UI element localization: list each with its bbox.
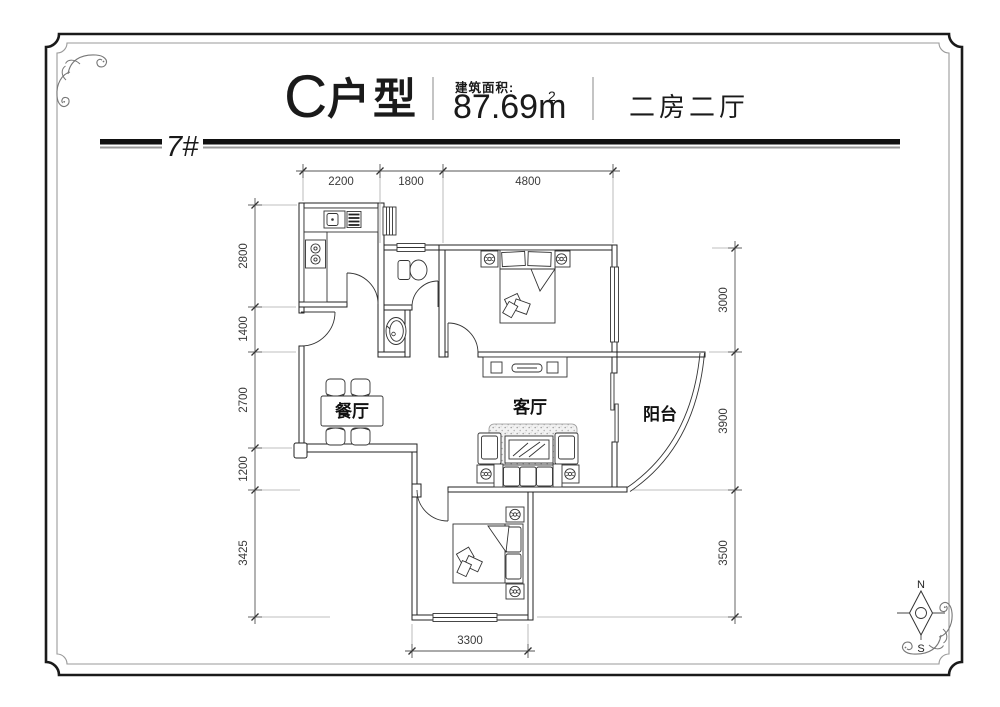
building-number-bar: 7# [100,131,900,163]
pillow [506,554,521,579]
dim-label-left-3425: 3425 [238,540,250,566]
area-unit-exponent: 2 [548,88,556,104]
bar-left-black [100,139,162,145]
dining-chair [326,379,345,396]
room-label-balcony: 阳台 [643,404,677,424]
compass-north-label: N [917,579,925,591]
coffee-table [505,436,553,463]
side-table [561,465,579,483]
dim-label-right-3900: 3900 [718,408,730,434]
compass-needle [910,591,933,635]
sofa [494,464,562,487]
pillow [528,252,551,267]
lamp-icon [510,586,520,596]
building-number-label: 7# [166,131,199,163]
armchair [555,433,578,464]
utility-shaft [383,207,396,235]
dim-label-bottom-3300: 3300 [457,635,483,647]
layout-type: 二房二厅 [629,92,749,122]
dim-label-right-3000: 3000 [718,287,730,313]
bedroom2-door-arc [417,490,448,521]
lamp-icon [481,469,491,479]
unit-type-word: 户型 [327,76,419,124]
room-label-dining: 餐厅 [335,401,369,421]
unit-type-letter: C [284,63,327,130]
dining-chair [351,428,370,445]
dim-label-left-1200: 1200 [238,456,250,482]
balcony-sliding-door [611,373,618,442]
bathroom-door-arc [412,281,438,307]
dimension-bottom: 3300 [405,624,535,658]
lamp-icon [484,254,494,264]
master-bedroom-door-arc [448,323,478,353]
room-label-living: 客厅 [512,397,547,417]
dim-label-top-4800: 4800 [515,176,541,188]
dim-label-left-2800: 2800 [238,243,250,269]
side-table [477,465,495,483]
pillow [502,251,526,266]
bathroom-washbasin [386,318,406,345]
title-block: C 户型 建筑面积: 87.69m 2 二房二厅 [284,63,749,130]
dim-label-top-2200: 2200 [328,176,354,188]
armchair [478,433,501,464]
floor-plan: 餐厅 客厅 阳台 [294,203,705,622]
dim-label-top-1800: 1800 [398,176,424,188]
dim-label-left-1400: 1400 [238,316,250,342]
compass-south-label: S [917,643,924,655]
floor-plan-canvas: C 户型 建筑面积: 87.69m 2 二房二厅 7# [0,0,1000,707]
floor-plan-page: C 户型 建筑面积: 87.69m 2 二房二厅 7# [0,0,1000,707]
kitchen-door-arc [347,273,378,304]
window-bedroom2 [433,614,497,622]
kitchen-sink [324,211,345,228]
kitchen-grill [347,212,361,228]
dining-chair [326,428,345,445]
entry-door-arc [301,312,335,346]
lamp-icon [556,254,566,264]
bar-right-gray [203,147,900,149]
bedroom2 [453,507,524,599]
bar-right-black [203,139,900,145]
window-master-bedroom [611,267,619,342]
lamp-icon [565,469,575,479]
bar-left-gray [100,147,162,149]
lamp-icon [510,509,520,519]
master-bedroom [481,250,570,323]
kitchen-stove [306,240,326,268]
tv-cabinet [483,357,567,377]
window-bathroom [397,244,425,252]
dining-chair [351,379,370,396]
living-room [477,357,579,487]
bathroom-toilet [398,260,427,280]
dim-label-right-3500: 3500 [718,540,730,566]
kitchen [304,208,378,302]
dim-label-left-2700: 2700 [238,387,250,413]
corner-flourish-top-left [57,55,107,107]
